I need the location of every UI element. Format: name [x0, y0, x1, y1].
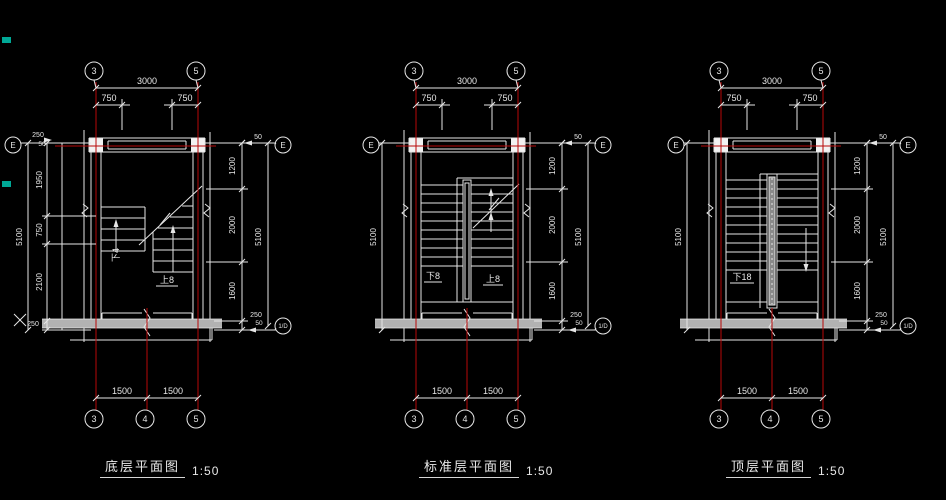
rect-shape	[769, 177, 775, 305]
dim-text: 1600	[228, 282, 237, 300]
rect-shape	[680, 319, 847, 328]
dim-arrow-icon	[564, 141, 572, 146]
dim-right-offset: 50	[574, 134, 582, 141]
dim-text: 2100	[35, 273, 44, 291]
dim-right-offset: 50	[879, 134, 887, 141]
dim-left-overall: 5100	[369, 228, 378, 246]
cad-drawing: 上8下4300075075035E19507502100250502505100…	[0, 0, 946, 500]
plan-standard: 下8上8300075075035E51005012002000160025050…	[363, 62, 611, 428]
dim-text: 250	[32, 132, 44, 139]
axis-bubble-label: 3	[716, 414, 721, 424]
wall-break-icon	[707, 204, 713, 217]
dim-text: 50	[880, 320, 888, 327]
axis-bubble-label: E	[905, 141, 910, 150]
axis-bubble-label: E	[673, 141, 678, 150]
cad-canvas: 上8下4300075075035E19507502100250502505100…	[0, 0, 946, 500]
plan-title-text: 顶层平面图	[726, 456, 811, 478]
wall-break-icon	[829, 204, 835, 217]
axis-bubble-label: 3	[411, 66, 416, 76]
wall-break-icon	[204, 204, 210, 217]
dim-arrow-icon	[568, 328, 576, 333]
plan-scale-text: 1:50	[192, 464, 219, 478]
axis-bubble-label: 5	[193, 66, 198, 76]
plan-title-standard: 标准层平面图 1:50	[419, 456, 553, 478]
dim-top-left: 750	[421, 93, 436, 103]
dim-top-left: 750	[101, 93, 116, 103]
dim-arrow-icon	[873, 328, 881, 333]
dim-bottom-right: 1500	[483, 386, 503, 396]
plan-title-text: 标准层平面图	[419, 456, 519, 478]
axis-bubble-label: E	[280, 141, 285, 150]
dim-top-right: 750	[802, 93, 817, 103]
plan-title-text: 底层平面图	[100, 456, 185, 478]
plan-title-top: 顶层平面图 1:50	[726, 456, 845, 478]
dim-left-overall: 5100	[674, 228, 683, 246]
dim-bottom-left: 1500	[737, 386, 757, 396]
dim-text: 250	[570, 312, 582, 319]
stair-up-label: 上8	[160, 275, 174, 285]
dim-arrow-icon	[244, 141, 252, 146]
axis-bubble-label: 5	[513, 66, 518, 76]
dim-bottom-right: 1500	[163, 386, 183, 396]
dim-right-overall: 5100	[574, 228, 583, 246]
stair-down-label: 下4	[111, 248, 121, 262]
stair-down-label: 下8	[426, 271, 440, 281]
axis-bubble-label: 4	[767, 414, 772, 424]
line-shape	[595, 143, 596, 144]
dim-right-overall: 5100	[879, 228, 888, 246]
axis-bubble-label: E	[600, 141, 605, 150]
axis-bubble-label: 4	[462, 414, 467, 424]
dim-text: 750	[35, 223, 44, 237]
plan-scale-text: 1:50	[526, 464, 553, 478]
rect-shape	[42, 319, 222, 328]
dim-arrow-icon	[489, 212, 494, 220]
dim-text: 250	[250, 312, 262, 319]
axis-bubble-label: 1/D	[598, 324, 608, 330]
wall-break-icon	[402, 204, 408, 217]
dim-text: 2000	[228, 216, 237, 234]
dim-top-overall: 3000	[762, 76, 782, 86]
rect-shape	[375, 319, 542, 328]
axis-bubble-label: E	[368, 141, 373, 150]
axis-bubble-label: 5	[513, 414, 518, 424]
wall-break-icon	[524, 204, 530, 217]
dim-text: 1200	[228, 157, 237, 175]
dim-text: 50	[255, 320, 263, 327]
dim-top-left: 750	[726, 93, 741, 103]
dim-arrow-icon	[869, 141, 877, 146]
line-shape	[275, 143, 276, 144]
screen-artifact	[2, 37, 11, 43]
dim-arrow-icon	[114, 219, 119, 227]
dim-text: 1200	[548, 157, 557, 175]
dim-text: 1600	[853, 282, 862, 300]
axis-bubble-label: 3	[91, 414, 96, 424]
axis-bubble-label: 4	[142, 414, 147, 424]
dim-top-right: 750	[177, 93, 192, 103]
plan-ground: 上8下4300075075035E19507502100250502505100…	[5, 62, 291, 428]
axis-bubble-label: 3	[411, 414, 416, 424]
dim-right-overall: 5100	[254, 228, 263, 246]
dim-arrow-icon	[171, 225, 176, 233]
dim-left-overall: 5100	[15, 228, 24, 246]
dim-text: 250	[875, 312, 887, 319]
dim-top-overall: 3000	[137, 76, 157, 86]
plan-top: 下18300075075035E510050120020001600250505…	[668, 62, 916, 428]
line-shape	[900, 143, 901, 144]
rect-shape	[463, 180, 471, 302]
wall-break-icon	[82, 204, 88, 217]
dim-text: 1200	[853, 157, 862, 175]
axis-bubble-label: 1/D	[903, 324, 913, 330]
stair-up-label: 上8	[486, 274, 500, 284]
dim-arrow-icon	[804, 264, 809, 272]
axis-bubble-label: 5	[818, 66, 823, 76]
dim-arrow-icon	[489, 188, 494, 196]
stair-down-label: 下18	[732, 272, 751, 282]
dim-right-offset: 50	[254, 134, 262, 141]
axis-bubble-label: 1/D	[278, 324, 288, 330]
axis-bubble-label: 3	[91, 66, 96, 76]
dim-top-overall: 3000	[457, 76, 477, 86]
axis-bubble-label: 3	[716, 66, 721, 76]
dim-text: 1950	[35, 171, 44, 189]
axis-bubble-label: 5	[193, 414, 198, 424]
dim-arrow-icon	[248, 328, 256, 333]
dim-text: 50	[575, 320, 583, 327]
dim-bottom-left: 1500	[432, 386, 452, 396]
dim-text: 2000	[548, 216, 557, 234]
plan-title-ground: 底层平面图 1:50	[100, 456, 219, 478]
dim-bottom-left: 1500	[112, 386, 132, 396]
dim-text: 2000	[853, 216, 862, 234]
dim-bottom-right: 1500	[788, 386, 808, 396]
dim-text: 1600	[548, 282, 557, 300]
dim-text: 250	[27, 321, 39, 328]
line-shape	[160, 213, 170, 225]
screen-artifact	[2, 181, 11, 187]
axis-bubble-label: 5	[818, 414, 823, 424]
dim-top-right: 750	[497, 93, 512, 103]
axis-bubble-label: E	[10, 141, 15, 150]
plan-scale-text: 1:50	[818, 464, 845, 478]
